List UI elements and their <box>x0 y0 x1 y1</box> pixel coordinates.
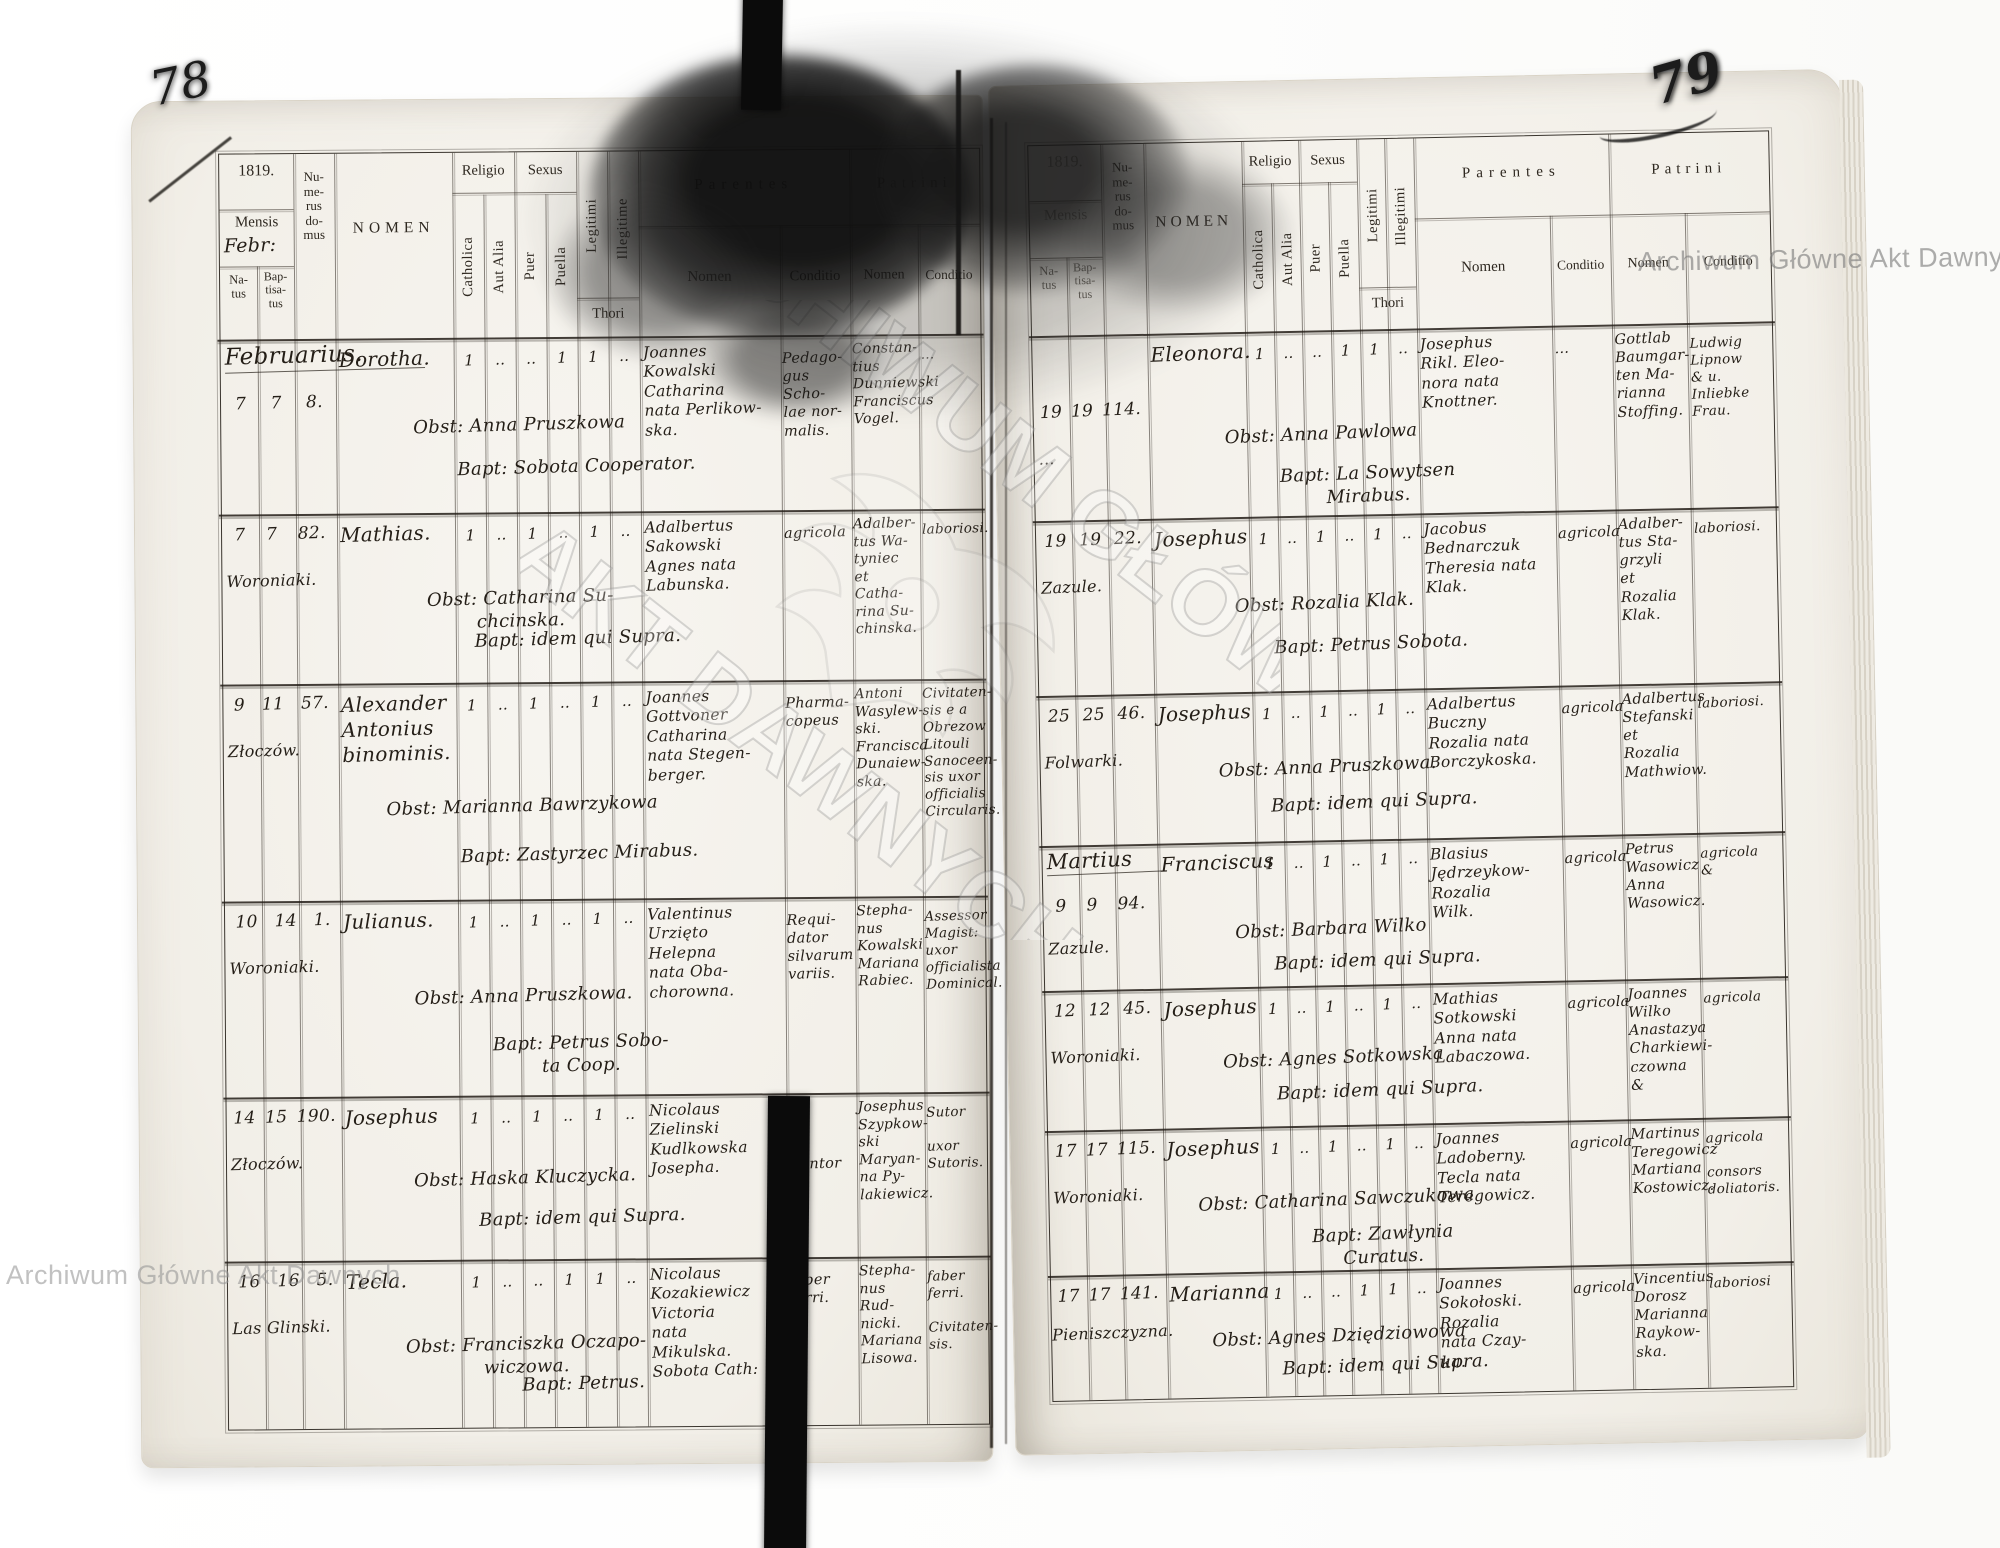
godparents-names: Joannes Wilko Anastazya Charkiewi- czown… <box>1627 983 1701 1095</box>
mark: 1 <box>1245 345 1274 365</box>
puer-label: Puer <box>1299 188 1331 329</box>
year-label: 1819. <box>1028 153 1100 172</box>
entry-row: 191922. Zazule. Josephus 1‥1‥1‥ Obst: Ro… <box>1036 506 1779 696</box>
mark: ‥ <box>1284 853 1313 873</box>
mark: 1 <box>1249 529 1278 549</box>
mark: ‥ <box>1293 1283 1322 1303</box>
godparents-names: Constan- tius Dunniewski Franciscus Voge… <box>852 340 919 429</box>
mark: ‥ <box>610 521 642 541</box>
baptizer-note: Bapt: idem qui Supra. <box>412 1201 753 1233</box>
entry-dates: 121245. <box>1047 998 1158 1024</box>
mark: ‥ <box>1277 528 1306 548</box>
mark: ‥ <box>552 1106 584 1126</box>
parents-names: Joannes Kowalski Catharina nata Perlikow… <box>643 340 781 441</box>
religion-sex-marks: 1‥1‥1‥ <box>1255 849 1428 875</box>
birth-date: 9 <box>234 695 246 717</box>
nomen-label: NOMEN <box>335 219 453 237</box>
sexus-label: Sexus <box>514 162 576 179</box>
godparents-names: Josephus Szypkow- ski Maryan- na Py- lak… <box>857 1098 925 1205</box>
entry-dates: 1717141. <box>1053 1283 1164 1309</box>
parentes-label: Parentes <box>1414 163 1609 184</box>
baptizer-note: Bapt: idem qui Supra. <box>1215 1073 1546 1109</box>
legitimi-label: Legitimi <box>576 160 608 292</box>
mark: ‥ <box>1281 703 1310 723</box>
patrini-conditio-label: Conditio <box>918 267 980 283</box>
mark: ‥ <box>1347 1136 1376 1156</box>
illegitimi-label: Illegitimi <box>1384 148 1416 284</box>
mark: 1 <box>546 348 578 368</box>
child-name: Franciscus <box>1160 849 1261 878</box>
parents-names: Joannes Ladoberny. Tecla nata Teregowicz… <box>1435 1125 1568 1208</box>
parents-names: Valentinus Urzięto Helepna nata Oba- cho… <box>647 902 785 1003</box>
entry-row: 91157. Złoczów. Alexander Antonius binom… <box>223 679 985 902</box>
baptizer-note: Bapt: Petrus Sobo- ta Coop. <box>411 1027 752 1082</box>
mark: ‥ <box>1321 1282 1350 1302</box>
baptism-date: 7 <box>270 393 282 415</box>
entry-row: 7782. Woroniaki. Mathias. 1‥1‥1‥ Obst: C… <box>222 509 983 685</box>
house-number: 45. <box>1123 998 1152 1020</box>
mark: ‥ <box>1290 1138 1319 1158</box>
baptizer-note: Bapt: Zastyrzec Mirabus. <box>409 838 750 870</box>
baptisatus-label: Bap- tisa- tus <box>1067 261 1104 302</box>
religion-sex-marks: 1‥1‥1‥ <box>1252 699 1425 725</box>
right-page: 1819. Mensis Na- tus Bap- tisa- tus Nu- … <box>988 69 1869 1456</box>
child-name: Eleonora. <box>1150 339 1251 368</box>
child-name: Josephus <box>1157 699 1258 728</box>
spine-strap-top <box>741 0 783 110</box>
mark: ‥ <box>486 525 518 545</box>
godparents-names: Adalber- tus Sta- grzyli et Rozalia Klak… <box>1618 513 1692 625</box>
puella-label: Puella <box>545 198 577 334</box>
mark: ‥ <box>523 1271 555 1291</box>
birth-date: 12 <box>1053 1001 1076 1023</box>
parents-condition: agricola <box>1558 523 1616 543</box>
baptism-date: 25 <box>1082 705 1105 727</box>
mark: ‥ <box>484 350 516 370</box>
baptizer-note: Bapt: Zawłynia Curatus. <box>1218 1216 1550 1274</box>
child-name: Josephus <box>1163 994 1264 1023</box>
catholica-label: Catholica <box>452 199 484 335</box>
house-number: 57. <box>301 693 330 715</box>
archive-watermark-top-right: Archiwum Główne Akt Dawnych <box>1638 241 2000 278</box>
rule <box>639 224 980 228</box>
mark: 1 <box>521 1107 553 1127</box>
entry-row: Martius 9994. Zazule. Franciscus 1‥1‥1‥ … <box>1042 831 1785 991</box>
parents-names: Joannes Gottvoner Catharina nata Stegen-… <box>645 685 783 786</box>
spine-strap-bottom <box>764 1096 810 1548</box>
mark: ‥ <box>613 908 645 928</box>
religion-sex-marks: 1‥1‥1‥ <box>1258 994 1431 1020</box>
house-number: 46. <box>1117 703 1146 725</box>
godparents-names: Petrus Wasowicz Anna Wasowicz. <box>1625 838 1698 913</box>
rule <box>1415 211 1770 219</box>
midwife-note: Obst: Anna Pawlowa <box>1146 416 1497 453</box>
house-number-label: Nu- me- rus do- mus <box>1101 160 1145 234</box>
mark: ‥ <box>1392 524 1421 544</box>
godparents-condition: Sutor uxor Sutoris. <box>926 1103 986 1172</box>
mark: 1 <box>1255 854 1284 874</box>
entry-row: Februarius. 778. Dorotha. 1‥‥11‥ Obst: A… <box>221 334 982 515</box>
entry-row: 10141. Woroniaki. Julianus. 1‥1‥1‥ Obst:… <box>225 896 987 1098</box>
godparents-condition: laboriosi. <box>1697 692 1778 712</box>
mark: 1 <box>1313 852 1342 872</box>
month-column-label: Mensis <box>1029 207 1101 225</box>
baptizer-note: Bapt: idem qui Supra. <box>1209 785 1540 821</box>
birth-date: 19 <box>1040 402 1063 424</box>
godparents-condition: Civitaten- sis e a Obrezow Litouli Sanoc… <box>922 684 984 821</box>
entry-row: 121245. Woroniaki. Josephus 1‥1‥1‥ Obst:… <box>1045 976 1788 1131</box>
baptism-date: 9 <box>1086 895 1098 917</box>
baptizer-note: Bapt: Sobota Cooperator. <box>406 451 747 483</box>
mark: 1 <box>517 524 549 544</box>
mark: 1 <box>1318 1137 1347 1157</box>
mark: 1 <box>1261 1139 1290 1159</box>
mark: 1 <box>582 909 614 929</box>
baptizer-note: Bapt: La Sowytsen Mirabus. <box>1202 456 1534 514</box>
religion-sex-marks: 1‥1‥1‥ <box>1249 524 1422 550</box>
birth-date: 19 <box>1044 531 1067 553</box>
mark: 1 <box>453 351 485 371</box>
mark: 1 <box>1316 997 1345 1017</box>
puer-label: Puer <box>514 198 546 334</box>
mark: 1 <box>458 913 490 933</box>
mark: 1 <box>583 1105 615 1125</box>
baptism-date: 15 <box>265 1107 288 1129</box>
birth-date: 7 <box>235 394 247 416</box>
birth-date: 9 <box>1055 896 1067 918</box>
parents-names: Josephus Rikl. Eleo- nora nata Knottner. <box>1419 330 1552 413</box>
house-number: 114. <box>1102 399 1142 422</box>
entry-row: 1919114. … Eleonora. 1‥‥11‥ Obst: Anna P… <box>1032 321 1776 521</box>
child-name: Dorotha. <box>338 344 469 373</box>
mark: ‥ <box>489 912 521 932</box>
place: Woroniaki. <box>226 568 387 593</box>
mark: 1 <box>577 347 609 367</box>
godparents-names: Vincentius Dorosz Marianna Raykow- ska. <box>1633 1268 1707 1361</box>
religion-sex-marks: 1‥‥11‥ <box>453 346 639 370</box>
birth-date: 10 <box>235 912 258 934</box>
mark: 1 <box>585 1269 617 1289</box>
religion-sex-marks: 1‥‥11‥ <box>461 1268 647 1292</box>
place: Zazule. <box>1041 572 1202 599</box>
mark: ‥ <box>1338 701 1367 721</box>
entry-dates: 91157. <box>225 693 338 717</box>
mark: ‥ <box>1341 851 1370 871</box>
house-number-label: Nu- me- rus do- mus <box>293 170 335 243</box>
mark: ‥ <box>1274 343 1303 363</box>
godparents-names: Adalber- tus Wa- tyniec et Catha- rina S… <box>853 515 922 639</box>
parentes-nomen-label: Nomen <box>1416 258 1551 278</box>
puella-label: Puella <box>1328 188 1360 329</box>
mark: 1 <box>1360 340 1389 360</box>
mark: 1 <box>1373 995 1402 1015</box>
child-name: Josephus <box>344 1102 475 1131</box>
parents-names: Nicolaus Zielinski Kudlkowska Josepha. <box>649 1098 786 1179</box>
mark: ‥ <box>1404 1133 1433 1153</box>
house-number: 1. <box>313 910 330 932</box>
mark: ‥ <box>1344 996 1373 1016</box>
mark: 1 <box>455 526 487 546</box>
entry-row: 1415190. Złoczów. Josephus 1‥1‥1‥ Obst: … <box>226 1092 987 1262</box>
child-name: Josephus <box>1166 1134 1267 1163</box>
gutter-line <box>990 118 993 1448</box>
parents-condition: agricola <box>784 523 851 543</box>
register-table-right: 1819. Mensis Na- tus Bap- tisa- tus Nu- … <box>1027 130 1794 1402</box>
house-number: 190. <box>296 1106 336 1128</box>
godparents-condition: laboriosi. <box>1694 517 1775 537</box>
godparents-condition: Ludwig Lipnow & u. Inliebke Frau. <box>1689 333 1772 421</box>
natus-label: Na- tus <box>1031 263 1068 292</box>
mark: ‥ <box>1388 339 1417 359</box>
birth-date: 25 <box>1048 706 1071 728</box>
month-column-label: Mensis <box>220 214 294 231</box>
baptism-date: 19 <box>1079 530 1102 552</box>
godparents-names: Stepha- nus Rud- nicki. Mariana Lisowa. <box>859 1262 927 1369</box>
sexus-label: Sexus <box>1298 152 1356 169</box>
baptism-date: 17 <box>1085 1140 1108 1162</box>
religion-sex-marks: 1‥‥11‥ <box>1245 339 1418 365</box>
mark: ‥ <box>548 523 580 543</box>
natus-label: Na- tus <box>220 272 257 300</box>
child-name: Marianna <box>1169 1279 1270 1308</box>
mark: ‥ <box>487 695 519 715</box>
child-name: Josephus <box>1154 524 1255 553</box>
parents-condition: Pharma- copeus <box>785 693 853 731</box>
thori-label: Thori <box>1359 294 1416 311</box>
entry-dates: 10141. <box>227 910 340 934</box>
birth-date: 17 <box>1057 1286 1080 1308</box>
mark: ‥ <box>1287 998 1316 1018</box>
parentes-nomen-label: Nomen <box>639 268 780 286</box>
patrini-nomen-label: Nomen <box>850 267 918 283</box>
mark: 1 <box>1331 341 1360 361</box>
parents-condition: … <box>1554 338 1612 358</box>
godparents-names: Gottlab Baumgar- ten Ma- rianna Stoffing… <box>1614 328 1688 421</box>
aut-alia-label: Aut Alia <box>483 198 515 334</box>
scanned-register-spread: 1819. Mensis Febr: Na- tus Bap- tisa- tu… <box>0 0 2000 1548</box>
parents-condition: agricola <box>1564 848 1622 868</box>
godparents-condition: … <box>920 345 978 364</box>
mark: 1 <box>1367 700 1396 720</box>
religion-sex-marks: 1‥1‥1‥ <box>458 908 644 932</box>
mark: ‥ <box>608 346 640 366</box>
mark: 1 <box>1376 1135 1405 1155</box>
mark: 1 <box>518 694 550 714</box>
house-number: 22. <box>1113 528 1142 550</box>
mark: ‥ <box>549 693 581 713</box>
parents-names: Blasius Jędrzeykow- Rozalia Wilk. <box>1430 840 1563 923</box>
mark: 1 <box>580 692 612 712</box>
religion-sex-marks: 1‥1‥1‥ <box>456 691 642 715</box>
parentes-conditio-label: Conditio <box>780 268 850 285</box>
parents-condition: Requi- dator silvarum variis. <box>786 910 855 984</box>
entry-dates: 191922. <box>1038 528 1149 554</box>
year-label: 1819. <box>219 162 293 180</box>
parents-names: Jacobus Bednarczuk Theresia nata Klak. <box>1423 515 1556 598</box>
entry-dates: 7782. <box>224 523 337 547</box>
entry-dates: 1415190. <box>228 1106 341 1130</box>
baptism-date: 7 <box>266 524 278 546</box>
entry-dates: 9994. <box>1045 893 1156 919</box>
mark: 1 <box>1379 1280 1408 1300</box>
month-entry: Martius <box>1046 844 1167 876</box>
parents-condition: agricola <box>1567 993 1625 1013</box>
place: Woroniaki. <box>229 955 390 980</box>
religio-label: Religio <box>1241 153 1298 170</box>
house-number: 115. <box>1116 1138 1156 1161</box>
mark: ‥ <box>492 1272 524 1292</box>
parentes-label: Parentes <box>638 176 849 194</box>
catholica-label: Catholica <box>1242 189 1274 330</box>
gutter-line <box>1005 122 1007 1444</box>
house-number: 82. <box>297 523 326 545</box>
entry-row: 1717115. Woroniaki. Josephus 1‥1‥1‥ Obst… <box>1048 1116 1791 1276</box>
midwife-note: Obst: Marianna Bawrzykowa <box>342 790 702 823</box>
mark: 1 <box>1310 702 1339 722</box>
birth-date: 7 <box>234 525 246 547</box>
mark: 1 <box>579 522 611 542</box>
baptizer-note: Bapt: Petrus Sobota. <box>1206 627 1537 663</box>
godparents-condition: agricola & <box>1700 842 1781 879</box>
mark: ‥ <box>616 1268 648 1288</box>
mark: ‥ <box>1335 526 1364 546</box>
house-number: 94. <box>1117 893 1146 915</box>
gutter-line <box>956 70 961 335</box>
mark: 1 <box>1258 999 1287 1019</box>
house-number: 141. <box>1119 1283 1159 1306</box>
mark: 1 <box>1252 704 1281 724</box>
month-handwritten: Febr: <box>223 233 294 259</box>
baptism-date: 19 <box>1071 401 1094 423</box>
baptism-date: 11 <box>262 694 285 716</box>
entry-dates: 778. <box>223 392 336 416</box>
mark: 1 <box>456 696 488 716</box>
entry-dates: 1717115. <box>1050 1138 1161 1164</box>
child-name: Julianus. <box>343 906 474 935</box>
mark: ‥ <box>1401 994 1430 1014</box>
entry-row: 1717141. Pieniszczyzna. Marianna 1‥‥11‥ … <box>1051 1261 1793 1401</box>
mark: ‥ <box>1396 699 1425 719</box>
parents-condition: agricola <box>1561 698 1619 718</box>
birth-date: 17 <box>1054 1141 1077 1163</box>
mark: ‥ <box>611 691 643 711</box>
parents-condition: agricola <box>1573 1278 1631 1298</box>
place: Las Glinski. <box>232 1315 393 1340</box>
rule <box>1029 200 1101 202</box>
register-table-left: 1819. Mensis Febr: Na- tus Bap- tisa- tu… <box>218 148 990 1431</box>
birth-date: 14 <box>233 1108 256 1130</box>
child-name: Alexander Antonius binominis. <box>341 689 473 768</box>
baptism-date: 17 <box>1088 1285 1111 1307</box>
godparents-condition: agricola consors doliatoris. <box>1705 1127 1788 1198</box>
mark: 1 <box>1363 525 1392 545</box>
illegitime-label: Illegitime <box>607 159 639 297</box>
godparents-condition: Assessor Magist: uxor officialista Domin… <box>924 907 984 993</box>
godparents-condition: faber ferri. Civitaten- sis. <box>927 1267 987 1353</box>
mark: ‥ <box>1399 849 1428 869</box>
parentes-conditio-label: Conditio <box>1551 257 1611 273</box>
mark: ‥ <box>1302 342 1331 362</box>
thori-label: Thori <box>577 305 639 322</box>
baptizer-note: Bapt: idem qui Supra. <box>1212 943 1543 979</box>
mark: 1 <box>459 1109 491 1129</box>
entry-dates: 252546. <box>1041 703 1152 729</box>
mark: 1 <box>1350 1281 1379 1301</box>
mark: ‥ <box>1407 1278 1436 1298</box>
godparents-names: Martinus Teregowicz Martiana Kostowicz. <box>1630 1123 1703 1198</box>
baptism-date: 12 <box>1088 1000 1111 1022</box>
religion-sex-marks: 1‥1‥1‥ <box>1261 1133 1434 1159</box>
religion-sex-marks: 1‥1‥1‥ <box>459 1104 645 1128</box>
mark: ‥ <box>614 1104 646 1124</box>
mark: 1 <box>1306 527 1335 547</box>
nomen-label: NOMEN <box>1145 212 1243 231</box>
mark: ‥ <box>490 1108 522 1128</box>
parents-names: Mathias Sotkowski Anna nata Labaczowa. <box>1432 985 1565 1068</box>
godparents-names: Stepha- nus Kowalski Mariana Rabiec. <box>856 902 923 991</box>
parents-names: Adalbertus Buczny Rozalia nata Borczykos… <box>1427 690 1560 773</box>
patrini-label: Patrini <box>1609 159 1769 179</box>
entry-dates: 1919114. <box>1035 399 1146 425</box>
entry-row: 252546. Folwarki. Josephus 1‥1‥1‥ Obst: … <box>1039 681 1782 846</box>
archive-watermark-bottom-left: Archiwum Główne Akt Dawnych <box>6 1260 401 1291</box>
mark: 1 <box>461 1273 493 1293</box>
mark: 1 <box>1264 1284 1293 1304</box>
mark: ‥ <box>551 910 583 930</box>
godparents-condition: laboriosi <box>1709 1272 1790 1292</box>
parents-names: Adalbertus Sakowski Agnes nata Labunska. <box>644 515 781 596</box>
parents-names: Joannes Sokołoski. Rozalia nata Czay- ka… <box>1438 1270 1572 1372</box>
legitimi-label: Legitimi <box>1356 149 1387 282</box>
house-number: 8. <box>306 392 323 414</box>
mark: 1 <box>520 911 552 931</box>
child-name: Mathias. <box>340 519 471 548</box>
rule <box>219 209 293 211</box>
mark: 1 <box>554 1270 586 1290</box>
parents-condition: agricola <box>1570 1133 1628 1153</box>
mark: 1 <box>1370 850 1399 870</box>
baptisatus-label: Bap- tisa- tus <box>257 270 294 311</box>
godparents-condition: laboriosi. <box>922 520 980 539</box>
mark: ‥ <box>515 349 547 369</box>
parents-condition: Pedago- gus Scho- lae nor- malis. <box>782 348 852 441</box>
godparents-condition: agricola <box>1703 987 1784 1007</box>
godparents-names: Adalbertus Stefanski et Rozalia Mathwiow… <box>1621 688 1695 781</box>
religion-sex-marks: 1‥1‥1‥ <box>455 521 641 545</box>
baptism-date: 14 <box>274 911 297 933</box>
aut-alia-label: Aut Alia <box>1271 189 1302 330</box>
godparents-names: Antoni Wasylew- ski. Francisca Dunaiew- … <box>854 685 922 792</box>
religion-sex-marks: 1‥‥11‥ <box>1264 1278 1437 1304</box>
religio-label: Religio <box>452 162 514 179</box>
